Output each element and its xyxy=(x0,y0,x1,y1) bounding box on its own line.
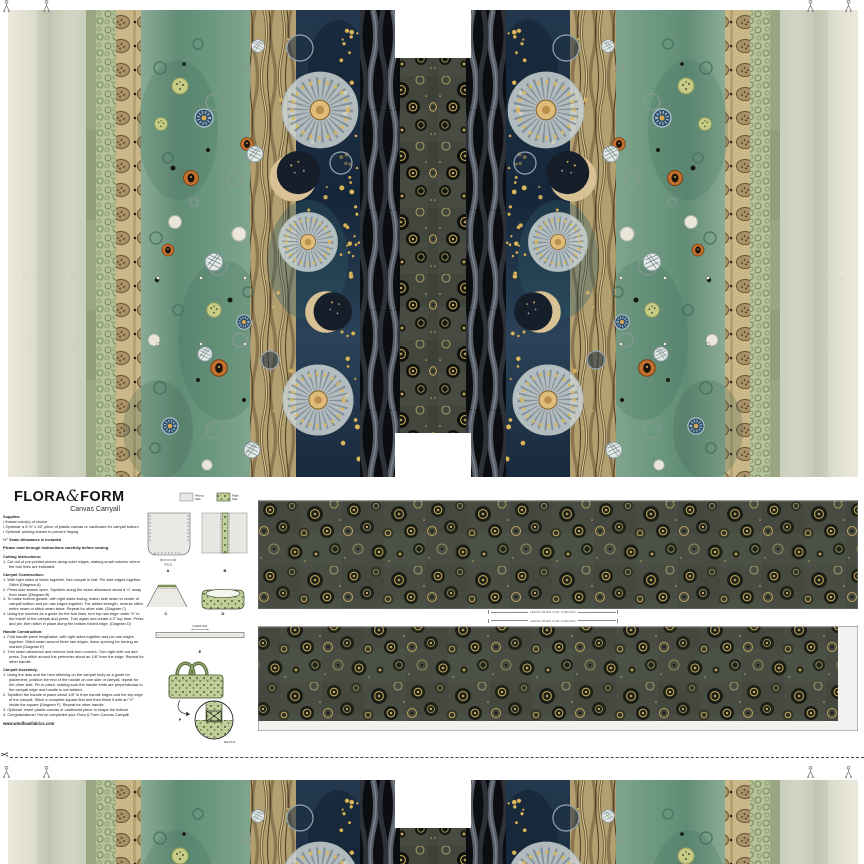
ampersand-glyph: & xyxy=(66,487,80,505)
section-heading: ½" Seam Allowance is Included xyxy=(3,538,144,543)
diagram-column: Wrong Side Right Side FOLD A B C D OPENI… xyxy=(146,487,258,757)
diagram-e: OPENING E xyxy=(156,624,244,654)
scissors-icon: ✂ xyxy=(0,750,8,761)
pin-marker-icon xyxy=(844,0,853,13)
handle-strip-2 xyxy=(258,626,858,731)
carryall-body-panel-top xyxy=(8,10,858,477)
instruction-item: 1. Fold handle piece lengthwise, with ri… xyxy=(3,635,144,650)
svg-text:E: E xyxy=(199,649,202,654)
diagram-b: B xyxy=(202,513,247,573)
fabric-panel-page: { "brand": { "name_left": "FLORA", "amp"… xyxy=(0,0,864,864)
svg-text:DETAIL: DETAIL xyxy=(224,740,236,744)
website-text: www.windhamfabrics.com xyxy=(3,721,144,726)
instruction-section: Carryall Assembly:1. Using the dots and … xyxy=(3,668,144,717)
diagram-a: FOLD A xyxy=(148,513,190,573)
instruction-item: 1. Using the dots and the hem stitching … xyxy=(3,673,144,693)
svg-text:C: C xyxy=(165,611,168,616)
svg-text:A: A xyxy=(167,568,170,573)
handle-strip-1 xyxy=(258,500,858,609)
pin-marker-icon xyxy=(806,766,815,779)
instruction-item: 4. Using the notches as a guide for the … xyxy=(3,612,144,627)
section-heading: Please read through instructions careful… xyxy=(3,546,144,551)
leave-open-note-2: LEAVE OPEN FOR TURNING xyxy=(488,619,618,623)
instruction-section: Cutting Instructions:1. Cut out of pre-p… xyxy=(3,555,144,570)
pin-marker-icon xyxy=(42,766,51,779)
svg-text:D: D xyxy=(222,611,225,616)
pin-marker-icon xyxy=(2,766,11,779)
cut-line xyxy=(10,757,864,758)
pin-marker-icon xyxy=(844,766,853,779)
pin-marker-icon xyxy=(42,0,51,13)
instruction-item: • Optional: pinking shears to prevent fr… xyxy=(3,530,144,535)
brand-name: FLORA&FORM xyxy=(14,489,120,505)
diagram-c: C xyxy=(147,586,187,616)
instruction-item: 1. Cut out of pre-printed pieces along o… xyxy=(3,560,144,570)
svg-text:OPENING: OPENING xyxy=(193,624,208,628)
svg-text:F: F xyxy=(179,717,182,722)
product-subtitle: Canvas Carryall xyxy=(14,506,120,513)
diagram-f: F DETAIL xyxy=(169,663,236,744)
instruction-section: Handle Construction:1. Fold handle piece… xyxy=(3,630,144,664)
svg-text:B: B xyxy=(224,568,227,573)
instructions-column: Supplies:• thread color(s) of choice• Op… xyxy=(3,515,144,726)
svg-text:FOLD: FOLD xyxy=(164,563,171,567)
instruction-item: 3. To make bottom gusset, with right sid… xyxy=(3,597,144,612)
instruction-item: 2. Topstitch the handle in place about 1… xyxy=(3,693,144,708)
pin-marker-icon xyxy=(2,0,11,13)
svg-text:Side: Side xyxy=(232,497,238,501)
instruction-section: Carryall Construction:1. With right side… xyxy=(3,573,144,627)
diagram-d: D xyxy=(202,589,244,616)
legend: Wrong Side Right Side xyxy=(180,493,239,501)
brand-logo: FLORA&FORM Canvas Carryall xyxy=(14,489,120,513)
instruction-item: 4. Congratulations! You've completed you… xyxy=(3,713,144,718)
pin-marker-icon xyxy=(806,0,815,13)
svg-text:Side: Side xyxy=(195,497,201,501)
instruction-section: ½" Seam Allowance is Included xyxy=(3,538,144,543)
instruction-item: 2. Trim seam allowance and remove bulk f… xyxy=(3,650,144,665)
instruction-section: Supplies:• thread color(s) of choice• Op… xyxy=(3,515,144,535)
leave-open-note-1: LEAVE OPEN FOR TURNING xyxy=(488,610,618,614)
carryall-body-panel-bottom xyxy=(8,780,858,864)
instruction-section: Please read through instructions careful… xyxy=(3,546,144,551)
